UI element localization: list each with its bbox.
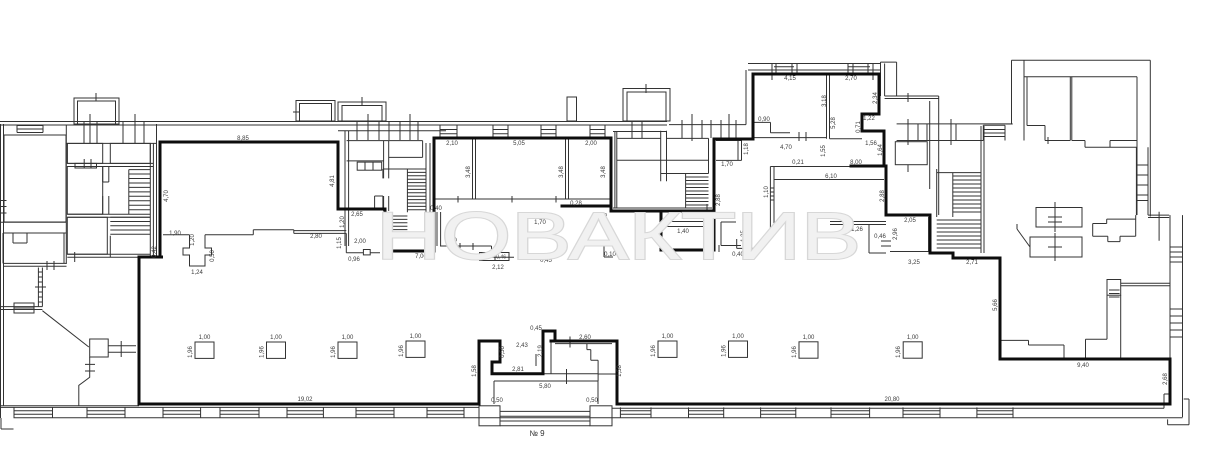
- svg-text:3,25: 3,25: [908, 260, 920, 266]
- svg-text:1,96: 1,96: [651, 345, 657, 357]
- svg-text:3,48: 3,48: [559, 166, 565, 178]
- svg-text:6,10: 6,10: [825, 174, 837, 180]
- svg-text:1,18: 1,18: [744, 143, 750, 155]
- svg-text:1,96: 1,96: [792, 346, 798, 358]
- svg-text:1,00: 1,00: [410, 334, 422, 340]
- svg-text:1,55: 1,55: [821, 145, 827, 157]
- svg-text:2,96: 2,96: [893, 228, 899, 240]
- svg-text:НОВАКТИВ: НОВАКТИВ: [376, 199, 861, 274]
- svg-text:3,18: 3,18: [822, 95, 828, 107]
- svg-text:1,00: 1,00: [662, 334, 674, 340]
- svg-text:0,90: 0,90: [758, 117, 770, 123]
- svg-text:1,24: 1,24: [191, 270, 203, 276]
- svg-text:5,80: 5,80: [539, 384, 551, 390]
- svg-text:2,05: 2,05: [904, 218, 916, 224]
- svg-text:1,00: 1,00: [907, 335, 919, 341]
- svg-text:3,48: 3,48: [466, 166, 472, 178]
- svg-text:№ 9: № 9: [529, 429, 545, 438]
- svg-text:2,00: 2,00: [585, 141, 597, 147]
- svg-text:1,58: 1,58: [617, 365, 623, 377]
- svg-text:0,56: 0,56: [500, 346, 506, 358]
- svg-text:3,48: 3,48: [601, 166, 607, 178]
- svg-text:1,70: 1,70: [721, 162, 733, 168]
- svg-text:1,15: 1,15: [337, 237, 343, 249]
- svg-text:0,45: 0,45: [530, 326, 542, 332]
- svg-text:2,81: 2,81: [512, 367, 524, 373]
- svg-text:2,70: 2,70: [845, 76, 857, 82]
- svg-text:1,10: 1,10: [764, 186, 770, 198]
- svg-text:1,90: 1,90: [169, 231, 181, 237]
- svg-text:1,96: 1,96: [188, 346, 194, 358]
- svg-text:2,10: 2,10: [446, 141, 458, 147]
- svg-text:0,50: 0,50: [491, 398, 503, 404]
- svg-text:2,43: 2,43: [516, 343, 528, 349]
- svg-text:1,00: 1,00: [803, 335, 815, 341]
- svg-text:2,65: 2,65: [351, 212, 363, 218]
- svg-text:2,80: 2,80: [310, 234, 322, 240]
- svg-text:1,58: 1,58: [472, 365, 478, 377]
- svg-text:4,70: 4,70: [780, 145, 792, 151]
- svg-text:5,28: 5,28: [831, 117, 837, 129]
- svg-text:8,85: 8,85: [237, 136, 249, 142]
- svg-text:20,80: 20,80: [884, 397, 900, 403]
- svg-text:1,00: 1,00: [732, 334, 744, 340]
- svg-text:0,50: 0,50: [586, 398, 598, 404]
- svg-text:4,70: 4,70: [164, 190, 170, 202]
- svg-text:0,21: 0,21: [792, 160, 804, 166]
- svg-text:2,68: 2,68: [1163, 373, 1169, 385]
- svg-text:5,05: 5,05: [513, 141, 525, 147]
- svg-text:4,81: 4,81: [330, 175, 336, 187]
- svg-text:1,20: 1,20: [190, 234, 196, 246]
- svg-text:2,60: 2,60: [579, 335, 591, 341]
- svg-text:4,15: 4,15: [784, 76, 796, 82]
- svg-text:0,50: 0,50: [210, 250, 216, 262]
- svg-text:2,71: 2,71: [966, 260, 978, 266]
- svg-text:0,96: 0,96: [348, 257, 360, 263]
- svg-text:1,96: 1,96: [260, 346, 266, 358]
- svg-text:0,42: 0,42: [152, 246, 158, 258]
- svg-text:19,02: 19,02: [297, 397, 313, 403]
- svg-text:1,96: 1,96: [896, 346, 902, 358]
- svg-text:0,71: 0,71: [856, 121, 862, 133]
- svg-text:9,40: 9,40: [1077, 363, 1089, 369]
- svg-text:2,19: 2,19: [538, 345, 544, 357]
- svg-text:1,22: 1,22: [863, 116, 875, 122]
- svg-text:1,64: 1,64: [878, 144, 884, 156]
- svg-text:2,88: 2,88: [880, 190, 886, 202]
- svg-text:0,46: 0,46: [874, 234, 886, 240]
- svg-text:5,66: 5,66: [993, 299, 999, 311]
- svg-text:1,96: 1,96: [331, 346, 337, 358]
- svg-text:1,56: 1,56: [865, 141, 877, 147]
- svg-text:1,00: 1,00: [270, 335, 282, 341]
- svg-text:1,96: 1,96: [722, 345, 728, 357]
- svg-text:2,34: 2,34: [873, 92, 879, 104]
- svg-text:1,00: 1,00: [342, 335, 354, 341]
- svg-text:1,00: 1,00: [199, 335, 211, 341]
- svg-text:1,20: 1,20: [340, 216, 346, 228]
- svg-text:1,96: 1,96: [399, 345, 405, 357]
- svg-text:2,00: 2,00: [354, 239, 366, 245]
- svg-text:8,00: 8,00: [850, 160, 862, 166]
